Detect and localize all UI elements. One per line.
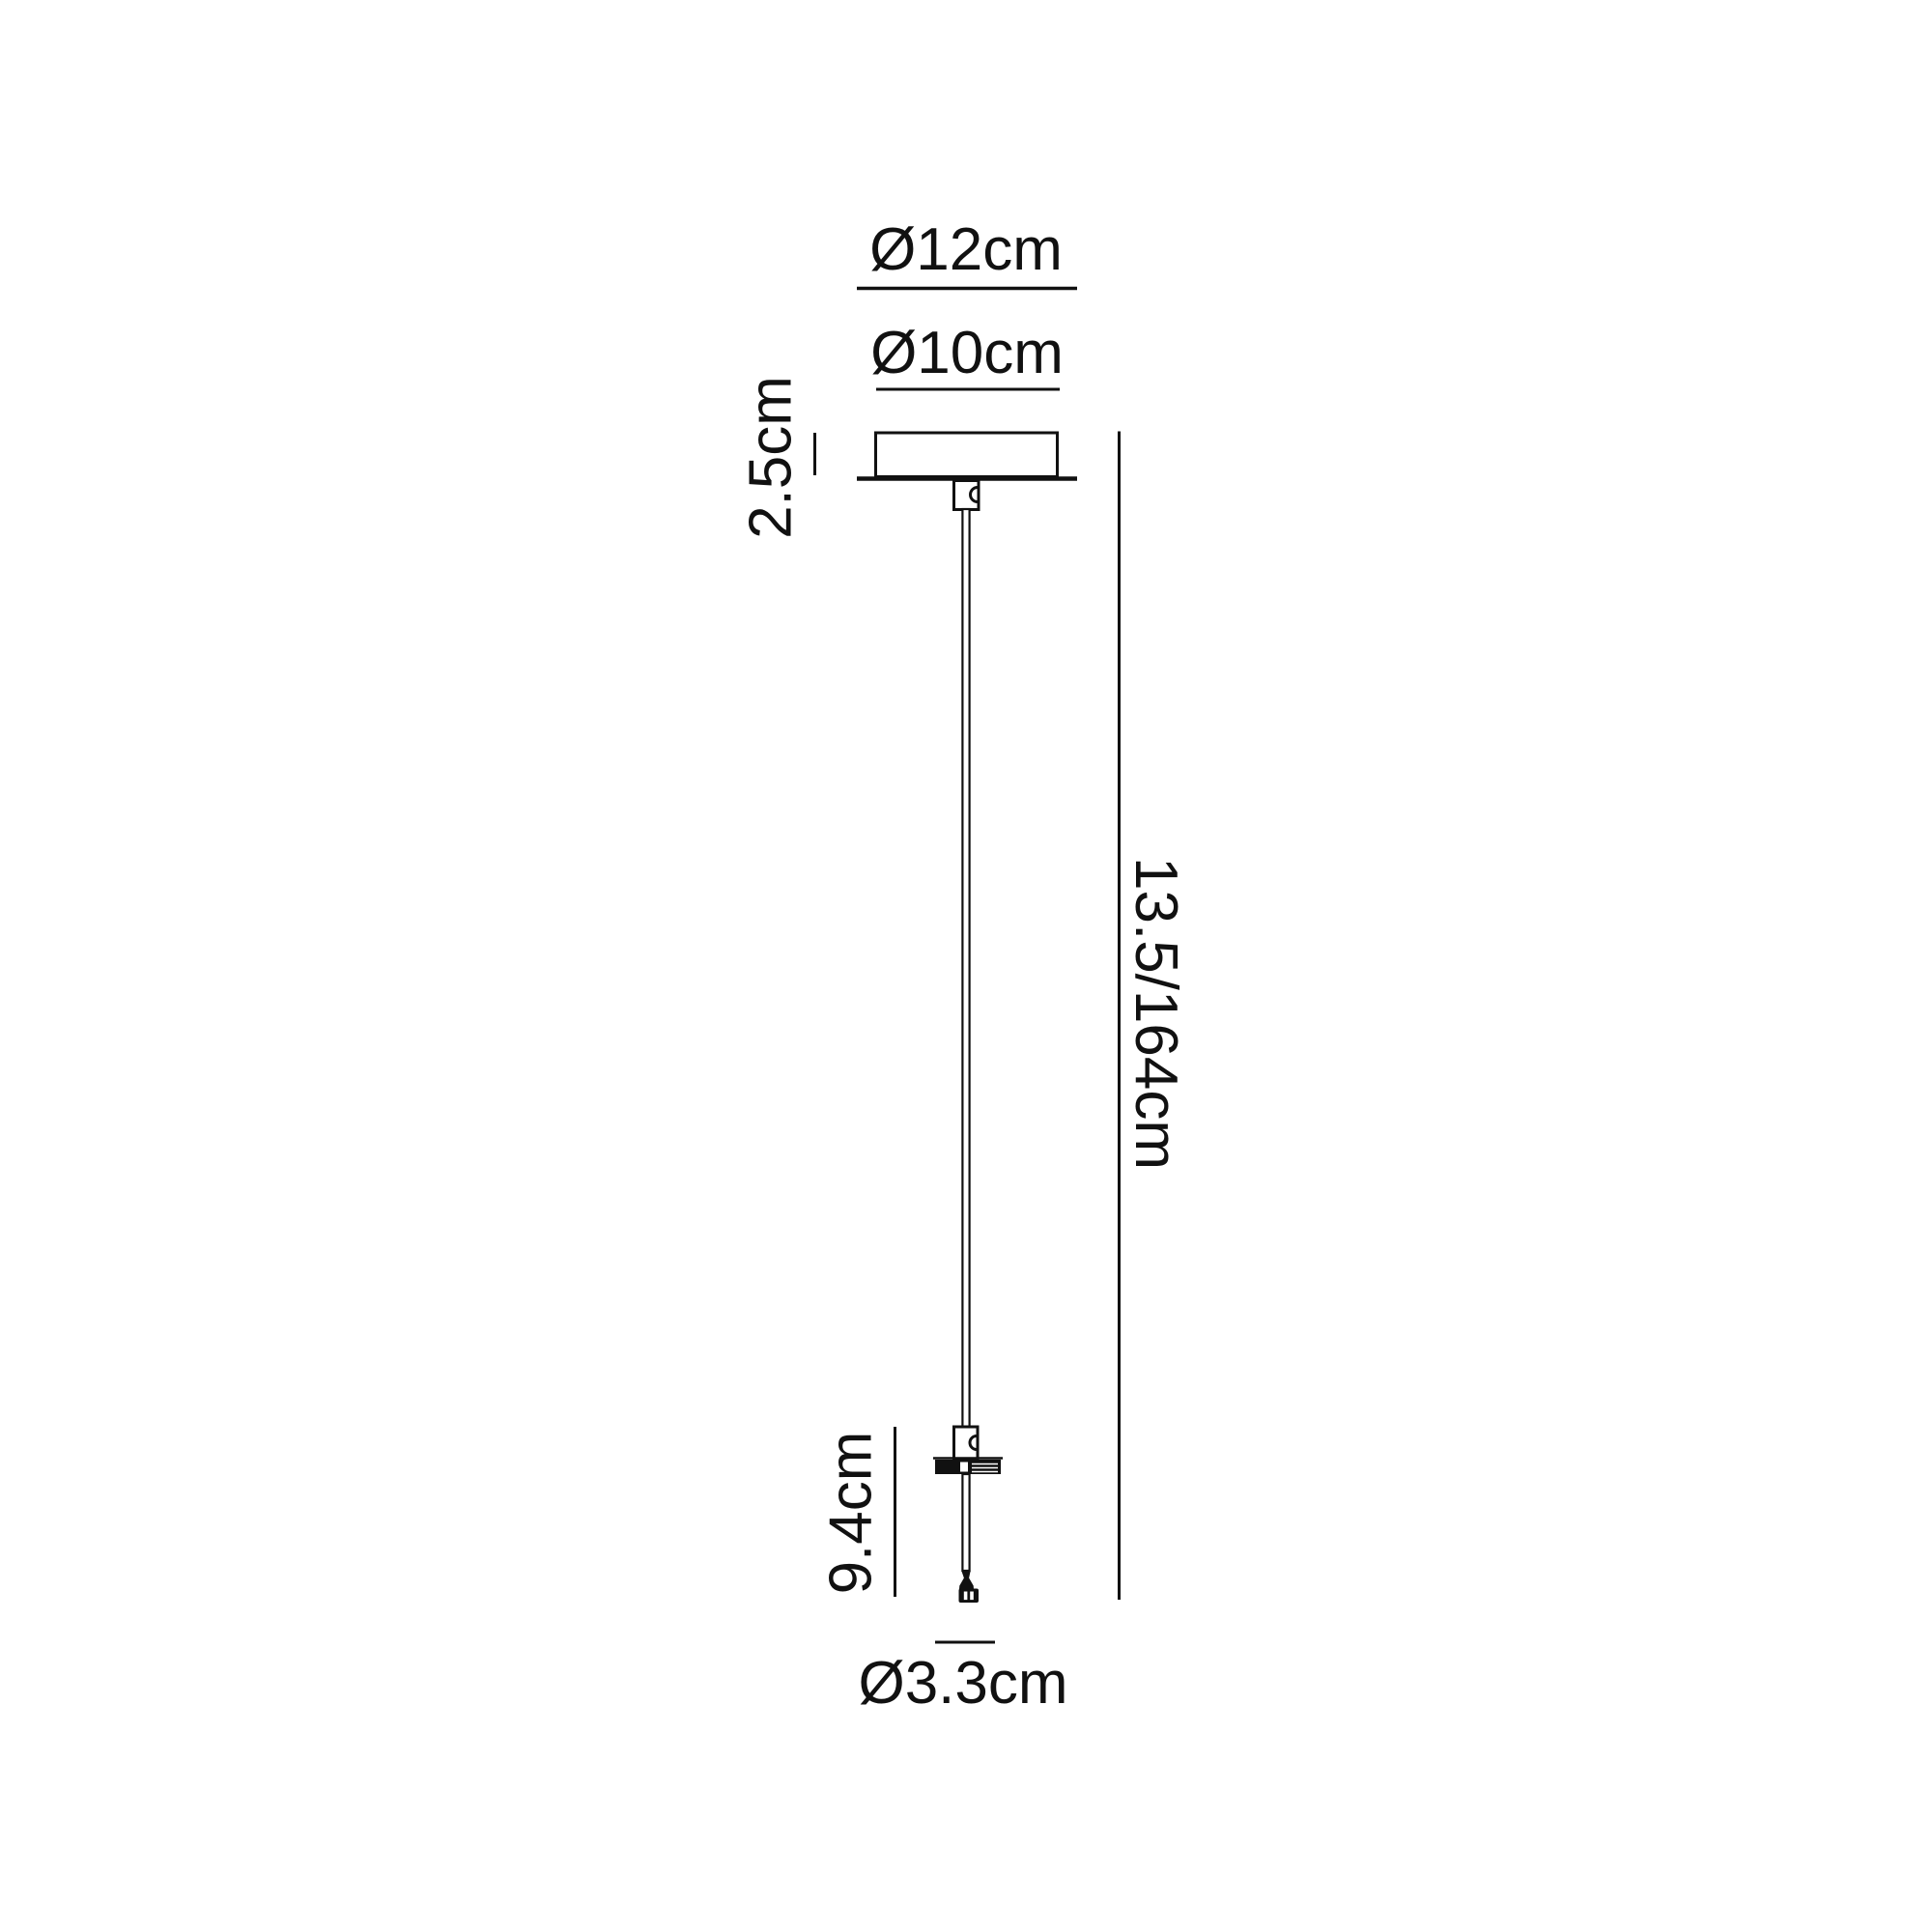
dim-label-lower-assembly-height: 9.4cm xyxy=(818,1432,885,1595)
dimension-drawing: Ø12cm Ø10cm 2.5cm 13.5/164cm 9.4cm Ø3.3c… xyxy=(0,0,1932,1932)
canopy-body xyxy=(876,433,1058,477)
suspension-cable-upper xyxy=(962,509,969,1427)
connector-plug-slot xyxy=(970,1592,974,1601)
dim-label-drop-length: 13.5/164cm xyxy=(1122,857,1189,1170)
dim-label-connector-diameter: Ø3.3cm xyxy=(858,1650,1067,1717)
connector-plug-slot xyxy=(964,1592,968,1601)
suspension-cable-lower xyxy=(962,1474,969,1571)
dim-label-canopy-diameter: Ø10cm xyxy=(870,320,1064,386)
connector-plug xyxy=(959,1589,980,1604)
cord-grip-top xyxy=(954,481,980,510)
drawing-canvas: Ø12cm Ø10cm 2.5cm 13.5/164cm 9.4cm Ø3.3c… xyxy=(0,0,1932,1932)
cord-grip-bottom xyxy=(954,1427,979,1459)
dim-label-plate-diameter: Ø12cm xyxy=(869,216,1063,283)
dim-label-canopy-height: 2.5cm xyxy=(738,376,805,539)
locking-disc-cable-slot xyxy=(959,1462,969,1473)
connector-neck xyxy=(959,1571,974,1589)
